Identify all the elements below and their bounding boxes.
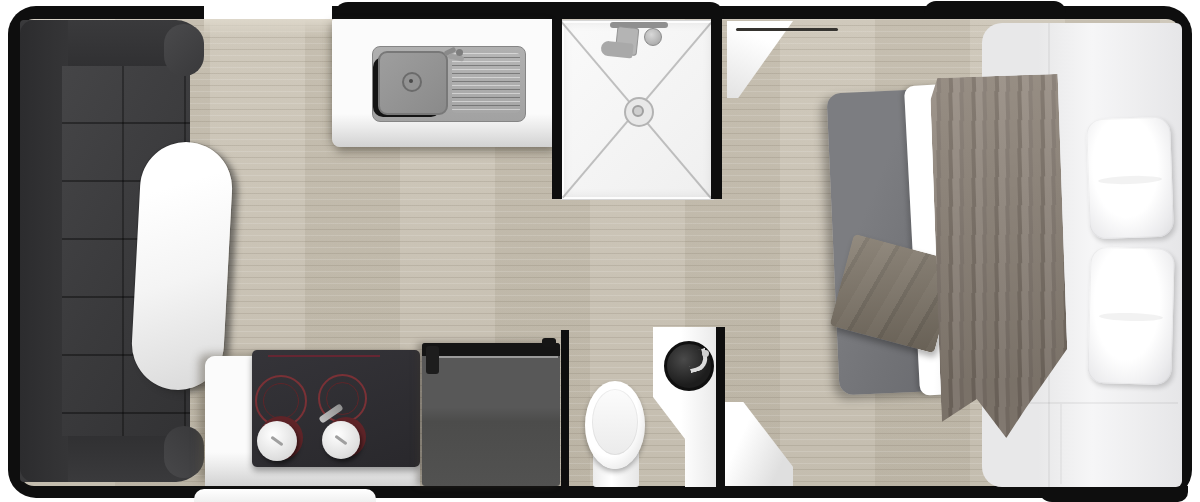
door-rail: [736, 28, 838, 31]
bathroom-wall-left: [561, 330, 569, 486]
cabinet-rail: [422, 343, 560, 356]
shower-wall-left: [552, 19, 562, 199]
entry-threshold: [204, 19, 332, 37]
shower-drain-inner: [632, 105, 644, 117]
hob-knob-right-slit: [334, 435, 347, 445]
sink-drain-dot: [409, 79, 413, 83]
entry-step: [194, 489, 376, 502]
cabinet-rail-trim: [426, 356, 558, 358]
shower-wall-right: [711, 19, 722, 199]
shower-knob: [644, 28, 662, 46]
sink-faucet-base: [456, 49, 463, 56]
sink-drainer: [452, 53, 520, 113]
cooktop-trim: [268, 355, 380, 357]
hob-knob-left: [257, 421, 297, 461]
sofa-armrest-bottom: [164, 426, 204, 478]
rear-step: [1038, 486, 1188, 502]
hob-knob-right: [322, 421, 360, 459]
sofa-armrest-top: [164, 24, 204, 76]
cabinet-latch: [426, 346, 439, 374]
cabinet: [422, 343, 560, 486]
hob-knob-left-slit: [270, 436, 283, 446]
pillow-bottom-crease: [1099, 312, 1163, 322]
bathroom-wall-right: [716, 327, 725, 487]
sofa-back: [20, 20, 68, 482]
pillow-top: [1086, 117, 1174, 240]
shower-tray: [561, 20, 714, 200]
entry-opening: [204, 0, 332, 19]
toilet-seat: [585, 381, 645, 469]
pillow-top-crease: [1098, 174, 1162, 184]
pillow-bottom: [1087, 247, 1175, 385]
vanity-faucet-base: [702, 350, 709, 357]
floorplan-canvas: [0, 0, 1200, 502]
shower-drain: [624, 97, 654, 127]
toilet-lid: [592, 389, 638, 455]
burner-left-inner: [263, 383, 299, 419]
bed-foot-seam-v: [1060, 404, 1062, 484]
dining-table: [130, 140, 235, 392]
cabinet-knob: [542, 338, 556, 347]
